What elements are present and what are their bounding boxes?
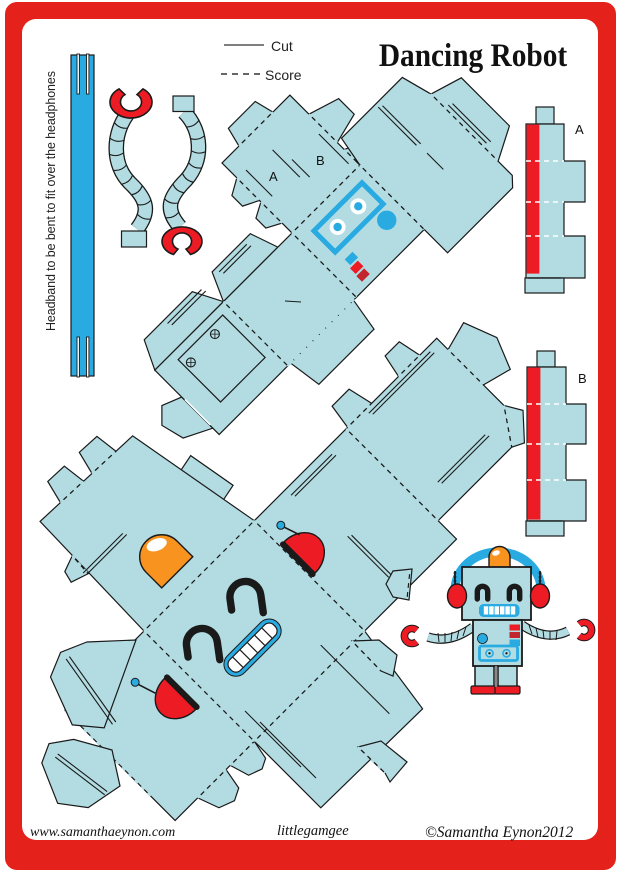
svg-text:©Samantha Eynon2012: ©Samantha Eynon2012 [425,824,573,841]
svg-text:B: B [316,153,325,168]
svg-text:littlegamgee: littlegamgee [277,823,349,839]
svg-text:Score: Score [265,67,302,83]
svg-text:Cut: Cut [271,38,293,54]
svg-text:Headband to be bent to fit ove: Headband to be bent to fit over the head… [44,71,58,331]
svg-text:A: A [575,122,584,137]
svg-text:A: A [269,169,278,184]
svg-text:www.samanthaeynon.com: www.samanthaeynon.com [30,825,175,840]
svg-text:B: B [578,371,587,386]
svg-text:Dancing Robot: Dancing Robot [379,36,568,73]
